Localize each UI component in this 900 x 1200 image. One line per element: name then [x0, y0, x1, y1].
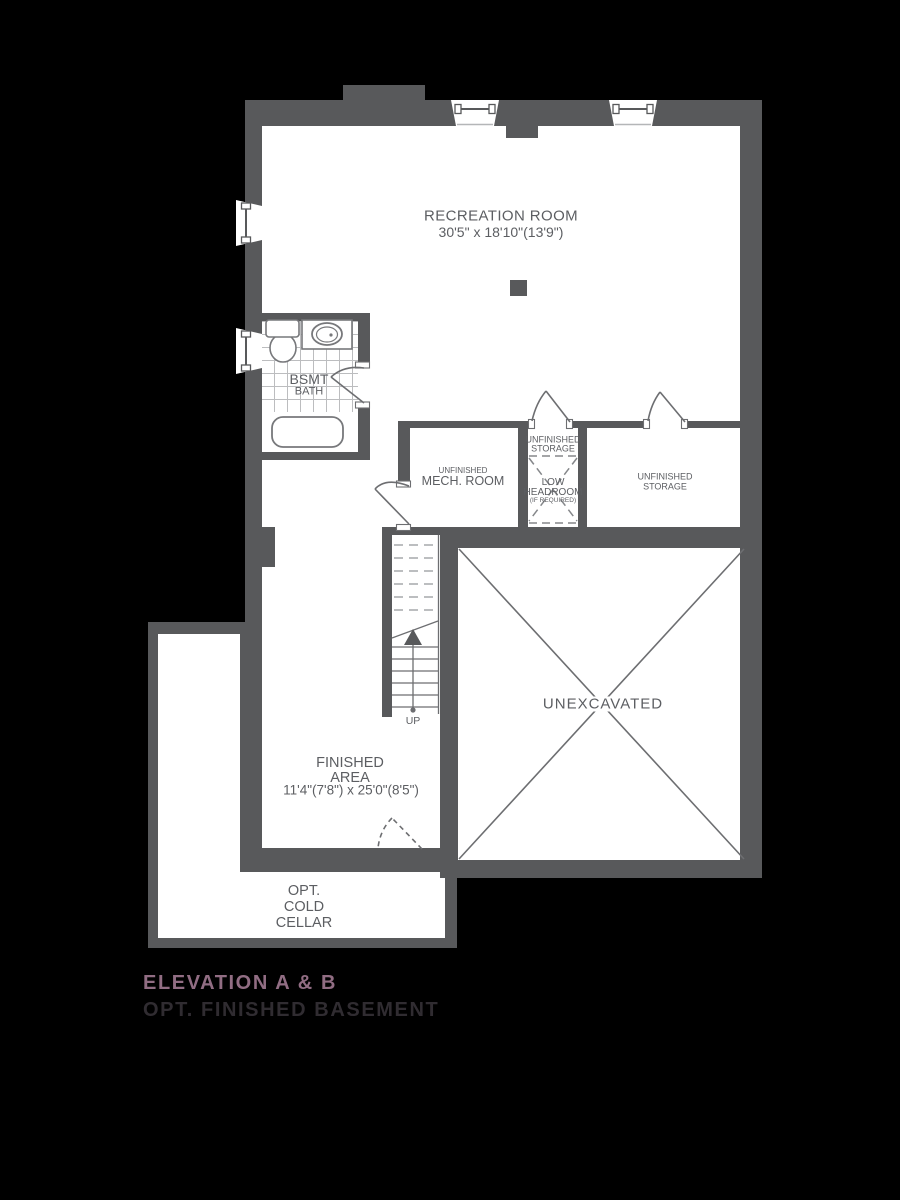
- label-storage-center-2: STORAGE: [531, 445, 575, 454]
- wall-right: [740, 100, 762, 878]
- label-recreation-room: RECREATION ROOM: [424, 209, 578, 224]
- plan-title: ELEVATION A & B: [143, 972, 337, 995]
- floor-plan: RECREATION ROOM 30'5" x 18'10"(13'9") BS…: [0, 0, 900, 1200]
- wall-finished-bottom: [245, 848, 457, 872]
- label-recreation-dims: 30'5" x 18'10"(13'9"): [439, 225, 564, 239]
- door-gap-mech: [398, 487, 410, 525]
- room-tub-alcove: [262, 412, 358, 452]
- label-finished-dims: 11'4"(7'8") x 25'0"(8'5"): [283, 783, 419, 797]
- wall-left: [245, 100, 262, 872]
- wall-bath-top: [262, 313, 370, 321]
- structural-post: [510, 280, 527, 296]
- label-cold-cellar-3: CELLAR: [276, 916, 332, 931]
- label-cold-cellar-2: COLD: [284, 900, 324, 915]
- room-bsmt-bath: [262, 321, 358, 412]
- label-storage-right-1: UNFINISHED: [637, 473, 692, 482]
- label-storage-right-2: STORAGE: [643, 483, 687, 492]
- stairwell: [392, 535, 440, 717]
- wall-unexcavated-left: [440, 548, 458, 860]
- wall-pilaster: [262, 527, 275, 567]
- wall-top-stub: [506, 126, 538, 138]
- label-cold-cellar-1: OPT.: [288, 884, 320, 899]
- wall-stairs-left: [382, 527, 392, 717]
- label-bath: BATH: [295, 387, 324, 398]
- wall-mid-bottom: [440, 527, 762, 548]
- wall-tub-bottom: [262, 452, 358, 460]
- label-mech-room: MECH. ROOM: [422, 475, 505, 488]
- door-gap-storage-center: [531, 421, 572, 428]
- door-gap-bath: [358, 368, 370, 403]
- label-up: UP: [406, 716, 421, 727]
- wall-unexcavated-bottom: [440, 860, 762, 878]
- label-finished-1: FINISHED: [316, 756, 384, 771]
- label-unexcavated: UNEXCAVATED: [539, 697, 667, 712]
- plan-subtitle: OPT. FINISHED BASEMENT: [143, 999, 439, 1022]
- door-gap-storage-right: [646, 421, 687, 428]
- label-bsmt: BSMT: [290, 372, 329, 386]
- label-low-headroom-3: (IF REQUIRED): [530, 498, 576, 505]
- wall-top: [245, 100, 762, 126]
